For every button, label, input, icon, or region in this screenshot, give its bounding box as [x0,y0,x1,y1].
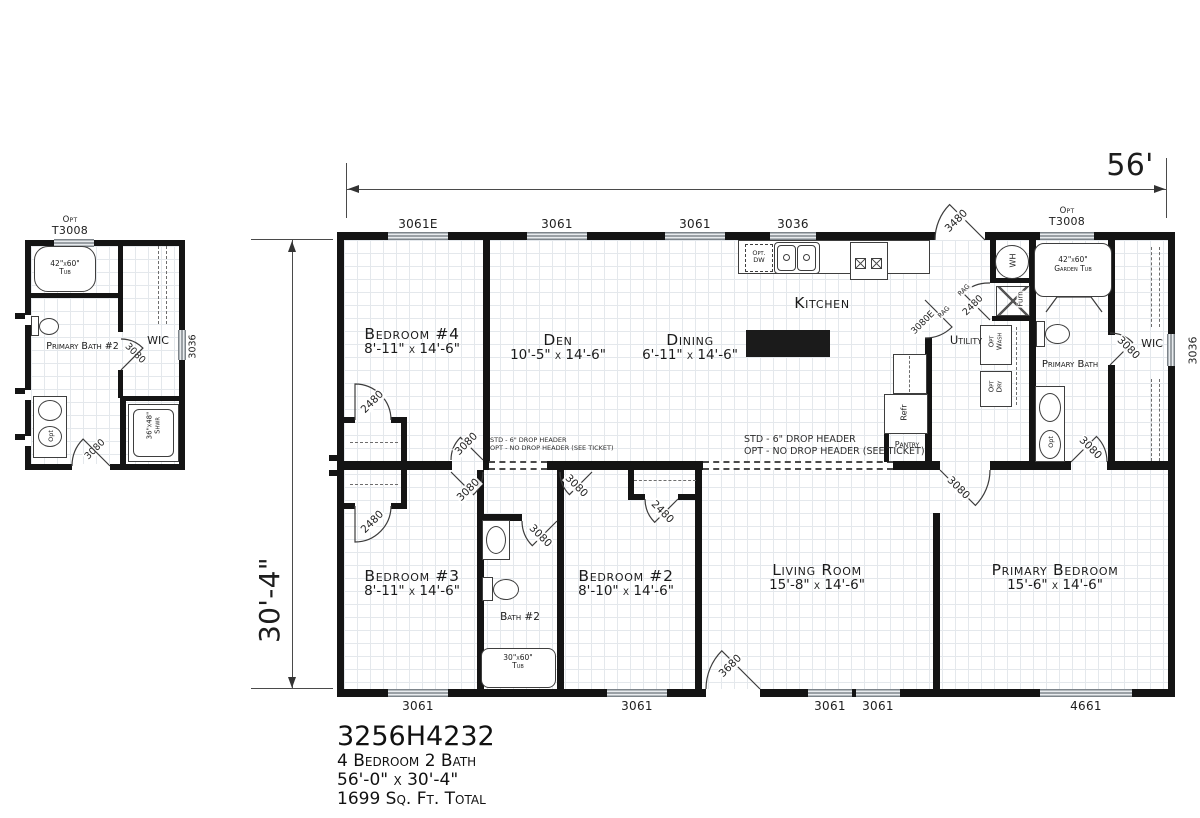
closet-wall [678,494,702,500]
room-bedroom3: Bedroom #3 8'-11" x 14'-6" [332,568,492,599]
room-wic: WIC [1136,337,1168,350]
room-primary-bath: Primary Bath [1032,359,1108,370]
room-primary-bedroom: Primary Bedroom 15'-6" x 14'-6" [965,562,1145,593]
room-size: 15'-8" x 14'-6" [737,578,897,593]
door-opening [72,464,110,470]
title-sqft: 1699 Sq. Ft. Total [337,790,637,809]
sink [38,400,62,421]
wall-exterior-right [1168,232,1175,697]
wall-tab [15,313,25,319]
cased-opening [703,461,893,470]
window-size: 3061 [808,699,852,713]
title-block: 3256H4232 4 Bedroom 2 Bath 56'-0" x 30'-… [337,722,637,809]
closet-wall [391,503,407,509]
toilet-bowl [39,318,59,335]
garden-tub-size: 42"x60" Garden Tub [1040,256,1106,273]
drop-header-note-l2: OPT - NO DROP HEADER (SEE TICKET) [490,444,614,452]
wall [25,240,31,315]
inset-window-size: 3036 [188,333,199,359]
window-size: 3036 [1187,336,1200,366]
dim-arrow [288,241,296,252]
room-dining: Dining 6'-11" x 14'-6" [620,332,760,363]
shower-size-l2: Shwr [154,406,162,446]
room-name: Kitchen [762,295,882,311]
sink [1039,393,1061,422]
drop-header-note-l1: STD - 6" DROP HEADER [744,434,925,446]
wall [992,316,1030,321]
wall [1108,365,1115,462]
dim-line-left [292,240,293,689]
wall-exterior-left [337,232,344,697]
closet-wall [401,470,407,503]
window-size: 3061 [388,699,448,713]
dishwasher-label-l2: DW [745,257,773,264]
closet-wall [344,503,355,509]
drop-header-note: STD - 6" DROP HEADER OPT - NO DROP HEADE… [490,436,614,453]
dim-tick [1166,158,1167,218]
wall [118,246,123,332]
wall [123,396,179,401]
furnace-label: Furn [1017,290,1025,307]
window [665,232,725,240]
drop-header-note: STD - 6" DROP HEADER OPT - NO DROP HEADE… [744,434,925,459]
room-bedroom2: Bedroom #2 8'-10" x 14'-6" [546,568,706,599]
wall [118,370,123,398]
toilet-tank [1036,321,1045,347]
sink-drain [803,254,810,261]
room-size: 6'-11" x 14'-6" [620,348,760,363]
room-size: 8'-11" x 14'-6" [332,342,492,357]
toilet-tank [31,316,39,336]
wall-tab [15,388,25,394]
toilet-bowl [493,579,519,600]
door-opening-rear [935,232,985,240]
room-name: Dining [620,332,760,348]
window-size: 3036 [770,217,816,231]
window-size: 3061 [856,699,900,713]
wall [120,398,126,464]
room-name: Bedroom #4 [332,326,492,342]
closet-rod [158,246,167,324]
room-bedroom4: Bedroom #4 8'-11" x 14'-6" [332,326,492,357]
closet-wall [401,423,407,461]
dim-width: 56' [1095,148,1165,183]
wall [25,446,31,470]
dim-line-top [347,189,1167,190]
window-size: 3061 [527,217,587,231]
room-utility: Utility [936,333,996,347]
floor-plan-sheet: Opt T3008 3036 42"x60" Tub Opt 36"x48" S… [0,0,1200,818]
inset-wic-label: WIC [143,334,173,347]
closet-wall [628,494,645,500]
wall-mid [990,461,1071,470]
sink-drain [783,254,790,261]
closet-rod [1151,379,1160,461]
bathtub-size-l2: Tub [486,662,550,670]
wall [933,513,940,689]
window [178,330,186,360]
cabinet-line [909,356,911,392]
dim-tick [346,163,347,218]
room-size: 10'-5" x 14'-6" [488,348,628,363]
closet-shelf [350,442,398,443]
room-size: 8'-11" x 14'-6" [332,584,492,599]
wall [25,400,31,436]
window [856,689,900,697]
window [808,689,852,697]
window-size: T3008 [1041,215,1093,228]
room-size: 15'-6" x 14'-6" [965,578,1145,593]
room-name: Living Room [737,562,897,578]
window [607,689,667,697]
closet-shelf [350,484,398,485]
dryer-label-l2: Dry [996,372,1004,402]
washer-label-l2: Wash [996,327,1004,357]
bathtub-size: 42"x60" Tub [40,260,90,276]
closet-rod [1151,247,1160,327]
toilet-bowl [1045,324,1070,344]
water-heater-label: WH [1008,253,1017,269]
room-name: Den [488,332,628,348]
room-living: Living Room 15'-8" x 14'-6" [737,562,897,593]
window [1040,689,1132,697]
wall-mid [344,461,452,470]
room-name: Primary Bedroom [965,562,1145,578]
room-bath2: Bath #2 [488,611,552,623]
window [527,232,587,240]
door-opening-front [706,689,760,697]
window-size: 3061 [607,699,667,713]
bathtub-size: 30"x60" Tub [486,654,550,670]
wall-mid [547,461,703,470]
window-size: 3061 [665,217,725,231]
model-number: 3256H4232 [337,722,637,752]
window [770,232,816,240]
refrigerator-label: Refr [900,403,909,421]
inset-room-label: Primary Bath #2 [30,341,135,352]
wall-tab [329,455,337,461]
dryer-label: Opt Dry [989,372,1004,402]
window [1040,232,1094,240]
burner [855,258,866,269]
dim-arrow [1154,185,1165,193]
cased-opening [489,461,547,470]
dim-arrow [348,185,359,193]
closet-wall [344,417,355,423]
wall [31,293,118,298]
title-beds-baths: 4 Bedroom 2 Bath [337,752,637,771]
utility-line [1016,327,1018,405]
shower-size: 36"x48" Shwr [147,406,162,446]
drop-header-note-l1: STD - 6" DROP HEADER [490,436,614,444]
title-dimensions: 56'-0" x 30'-4" [337,771,637,790]
wall-mid [893,461,940,470]
closet-shelf [634,480,696,481]
burner [871,258,882,269]
wall-tab [329,470,337,476]
room-size: 8'-10" x 14'-6" [546,584,706,599]
window [1167,334,1175,366]
dishwasher-label: Opt. DW [745,250,773,264]
room-name: Bedroom #3 [332,568,492,584]
garden-tub-size-l2: Garden Tub [1040,265,1106,274]
furnace [996,286,1030,316]
room-kitchen: Kitchen [762,295,882,311]
window [388,232,448,240]
sink [486,526,506,554]
window-size: 3061E [388,217,448,231]
room-den: Den 10'-5" x 14'-6" [488,332,628,363]
sink-opt-label: Opt [1047,435,1055,449]
wall-tab [15,434,25,440]
drop-header-note-l2: OPT - NO DROP HEADER (SEE TICKET) [744,446,925,458]
window [388,689,448,697]
closet-wall [628,470,634,496]
sink-opt-label: Opt [47,429,55,443]
dim-arrow [288,677,296,688]
window-size: 4661 [1040,699,1132,713]
room-name: Bedroom #2 [546,568,706,584]
bathtub-size-l2: Tub [40,268,90,276]
dim-depth: 30'-4" [250,535,290,665]
inset-model-label: T3008 [45,224,95,237]
wall-mid [1107,461,1168,470]
